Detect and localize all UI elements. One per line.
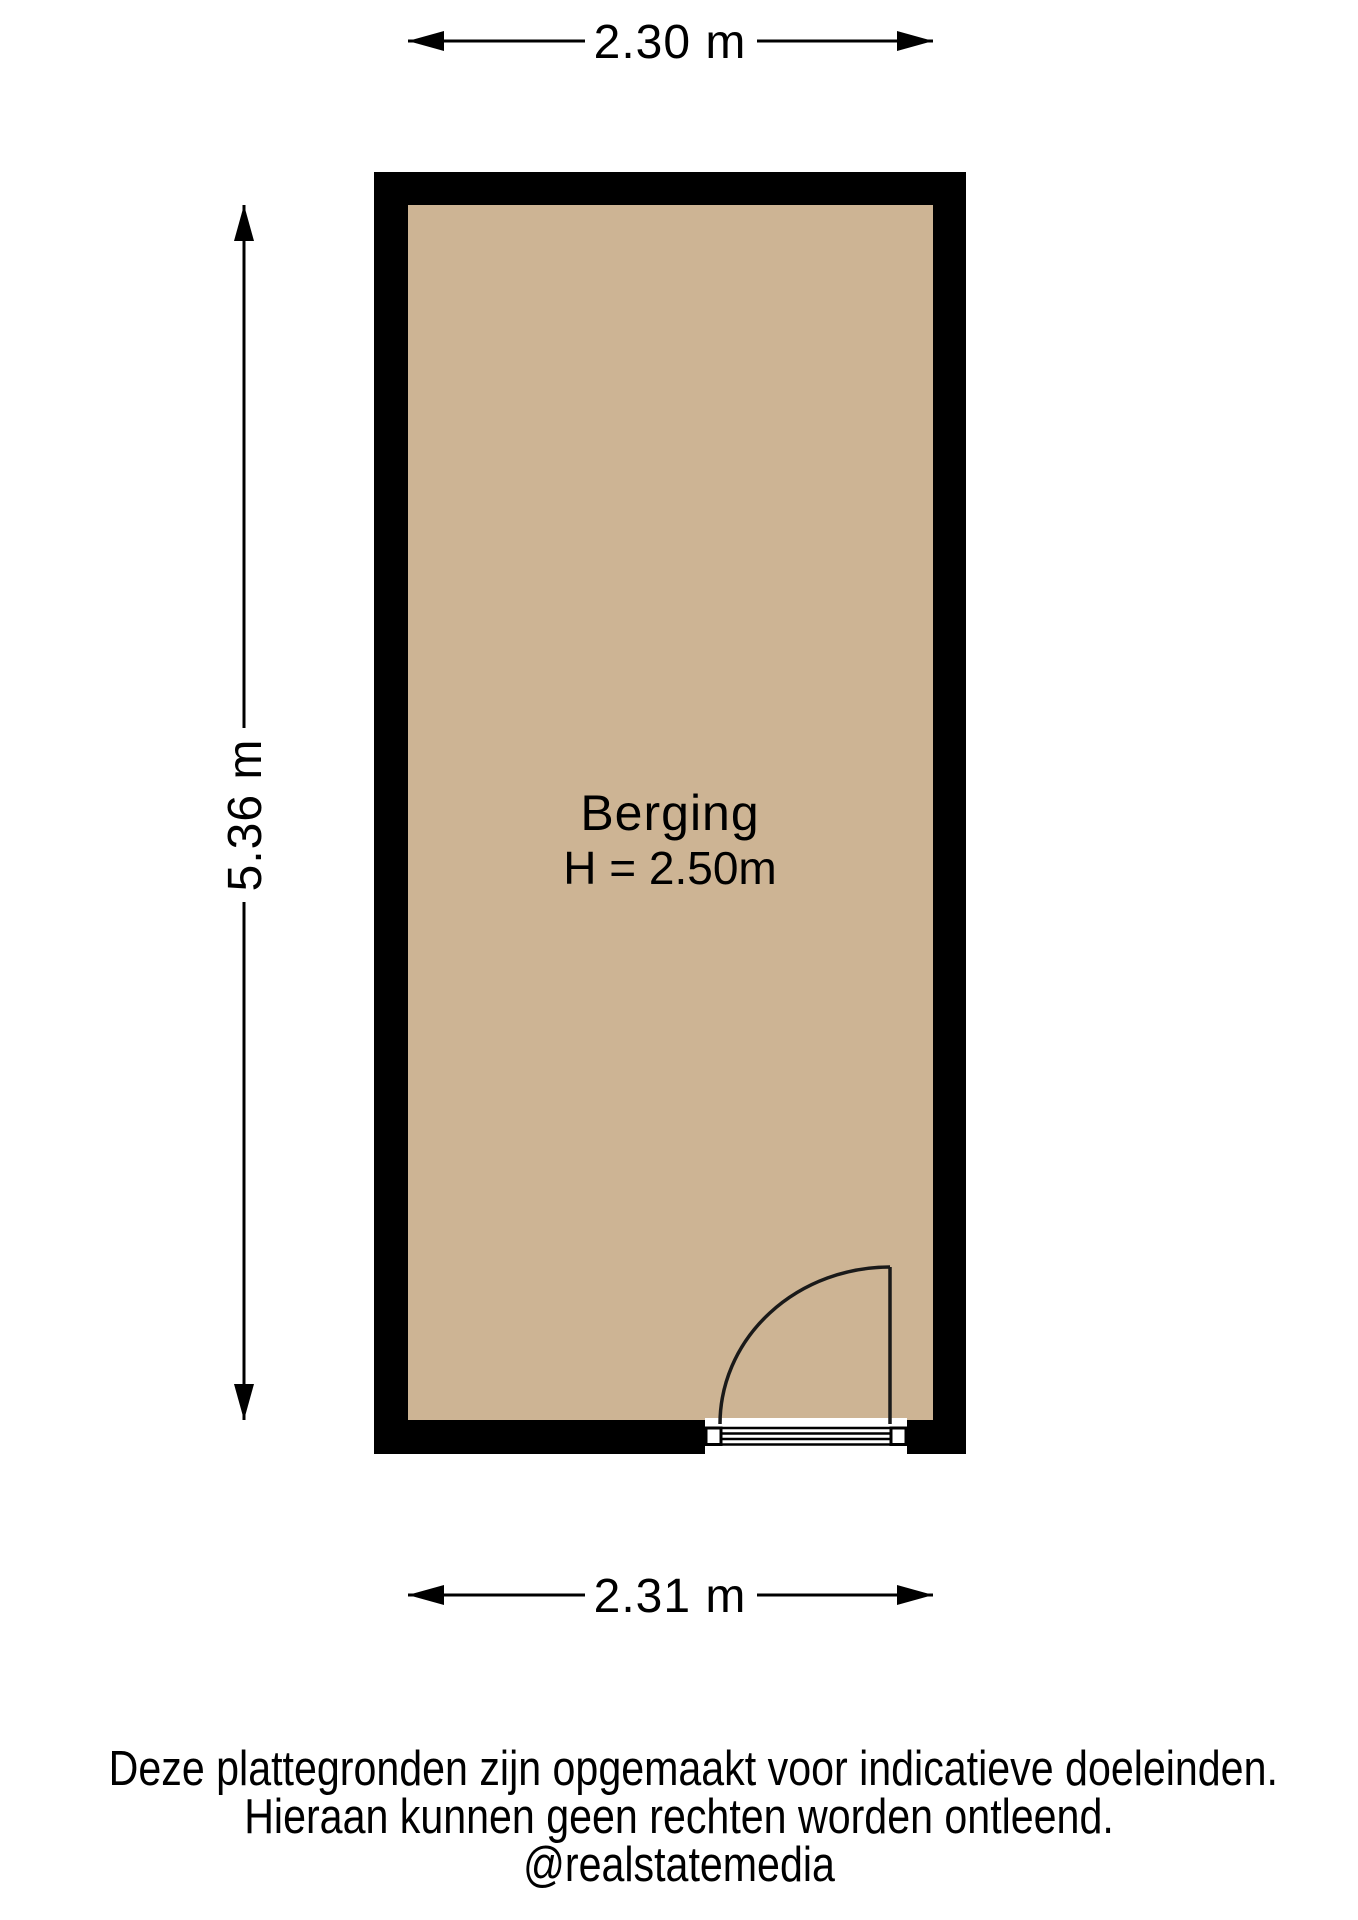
room-height-label: H = 2.50m (563, 842, 777, 894)
dimension-left: 5.36 m (213, 205, 275, 1420)
door-opening (705, 1418, 907, 1456)
arrow-up-icon (234, 205, 254, 241)
dimension-top-label: 2.30 m (594, 16, 747, 69)
arrow-right-icon (897, 1585, 933, 1605)
door-post-left (706, 1428, 721, 1445)
dimension-top: 2.30 m (408, 10, 933, 72)
disclaimer-line-1: Deze plattegronden zijn opgemaakt voor i… (109, 1745, 1250, 1793)
disclaimer-line-2: Hieraan kunnen geen rechten worden ontle… (109, 1793, 1250, 1841)
arrow-down-icon (234, 1384, 254, 1420)
arrow-right-icon (897, 31, 933, 51)
room-label: Berging (580, 785, 759, 841)
door-post-right (891, 1428, 906, 1445)
floorplan-page: 2.30 m Berging H = 2.50m (0, 0, 1358, 1920)
dimension-left-label: 5.36 m (219, 739, 272, 892)
dimension-bottom-label: 2.31 m (594, 1570, 747, 1623)
disclaimer-line-3: @realstatemedia (109, 1841, 1250, 1889)
arrow-left-icon (408, 31, 444, 51)
floorplan-drawing: 2.30 m Berging H = 2.50m (0, 0, 1358, 1920)
arrow-left-icon (408, 1585, 444, 1605)
disclaimer: Deze plattegronden zijn opgemaakt voor i… (109, 1745, 1250, 1889)
room-berging: Berging H = 2.50m (374, 172, 966, 1456)
dimension-bottom: 2.31 m (408, 1564, 933, 1626)
